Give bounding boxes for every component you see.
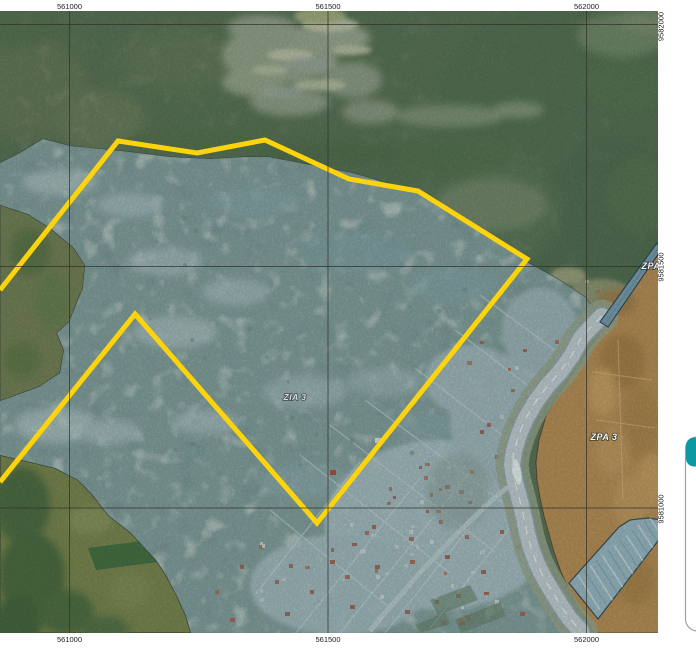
svg-text:562000: 562000	[574, 2, 599, 11]
svg-text:561000: 561000	[57, 635, 82, 644]
svg-text:561500: 561500	[315, 2, 340, 11]
svg-text:562000: 562000	[574, 635, 599, 644]
svg-text:ZIA 3: ZIA 3	[283, 392, 307, 402]
svg-text:9581000: 9581000	[657, 494, 666, 523]
svg-text:9581500: 9581500	[657, 252, 666, 281]
svg-text:561500: 561500	[315, 635, 340, 644]
svg-text:ZPA 3: ZPA 3	[589, 432, 617, 442]
svg-text:561000: 561000	[57, 2, 82, 11]
svg-text:9582000: 9582000	[657, 12, 666, 41]
